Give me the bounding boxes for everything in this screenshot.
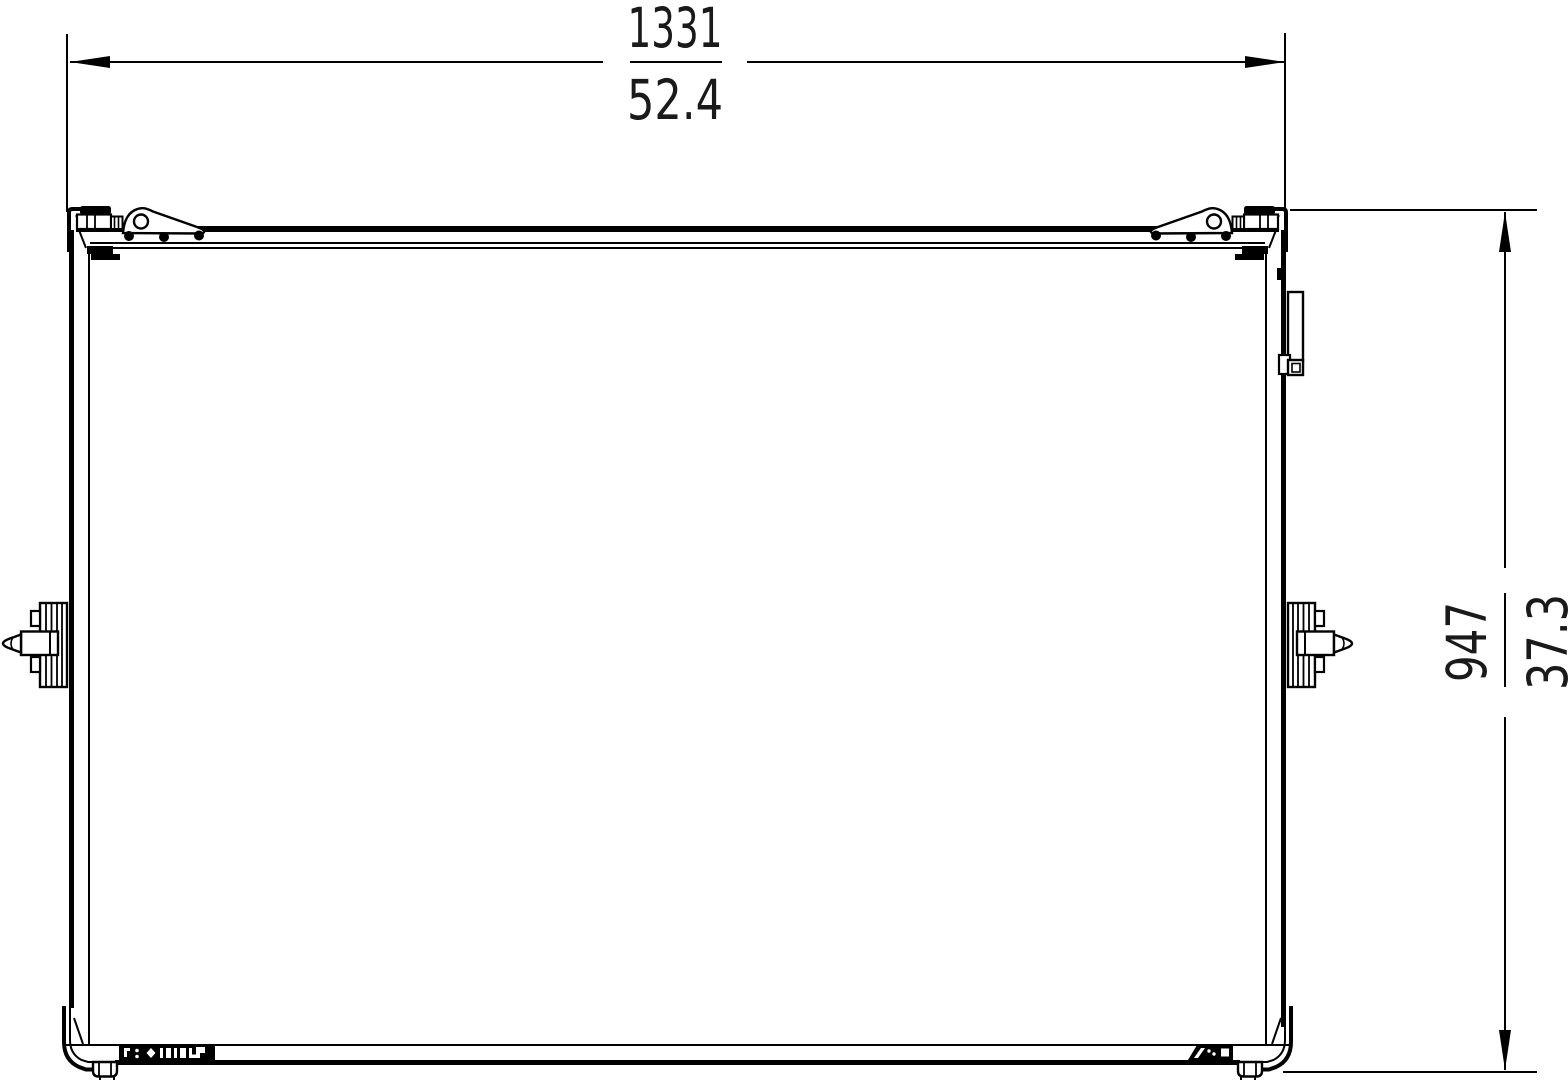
butterfly-latch-top-right [1233, 206, 1279, 229]
corner-bracket-bottom-left [64, 1006, 118, 1080]
case-front-elevation: 1331 52.4 947 37.3 [0, 0, 1568, 1080]
brand-logo-band-icon [119, 1044, 215, 1061]
arrowhead-bottom [1499, 1030, 1511, 1070]
hinge-top-right [1151, 208, 1232, 242]
case-body [64, 229, 1291, 1063]
arrowhead-right [1245, 56, 1285, 68]
case-top-inner-lines [90, 243, 1265, 248]
side-bracket-icon [1277, 268, 1303, 375]
twist-latch-right [1288, 603, 1352, 687]
twist-latch-left [3, 603, 67, 687]
arrowhead-left [70, 56, 110, 68]
dimension-width: 1331 52.4 [67, 0, 1285, 212]
arrowhead-top [1499, 212, 1511, 252]
technical-drawing-page: 1331 52.4 947 37.3 [0, 0, 1568, 1080]
hinge-top-left [123, 208, 204, 242]
height-value-mm: 947 [1435, 602, 1499, 682]
width-value-mm: 1331 [628, 0, 723, 60]
butterfly-latch-top-left [77, 206, 123, 229]
height-value-inches: 37.3 [1516, 594, 1568, 690]
corner-label-icon [1188, 1045, 1233, 1060]
width-value-inches: 52.4 [627, 68, 723, 132]
